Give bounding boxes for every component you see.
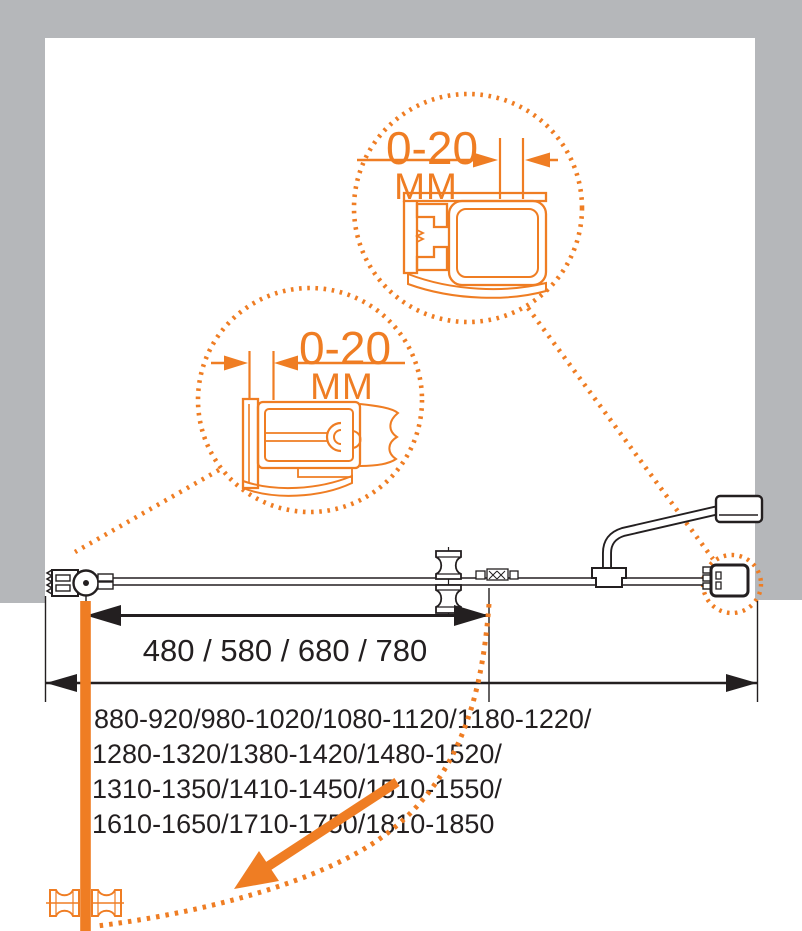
magnet-strip-icon — [476, 569, 518, 580]
wall-profile-top-icon — [357, 138, 558, 298]
diagram-linework — [0, 0, 802, 931]
wall-endcap-icon — [703, 565, 748, 596]
callout-circle-bottom — [198, 288, 422, 512]
pivot-hinge-icon — [47, 570, 113, 596]
dimension-door-width — [86, 588, 489, 702]
wall-profile-bottom-icon — [211, 351, 405, 496]
door-swing-arc — [97, 604, 489, 926]
leader-line-bottom — [75, 470, 219, 552]
door-swing-arrow-icon — [234, 782, 397, 889]
dimension-overall-width — [46, 596, 758, 702]
door-knob-icon — [436, 547, 461, 616]
door-open-position — [80, 601, 91, 931]
diagram-canvas: 0-20 ММ 0-20 ММ 480 / 580 / 680 / 780 88… — [0, 0, 802, 931]
